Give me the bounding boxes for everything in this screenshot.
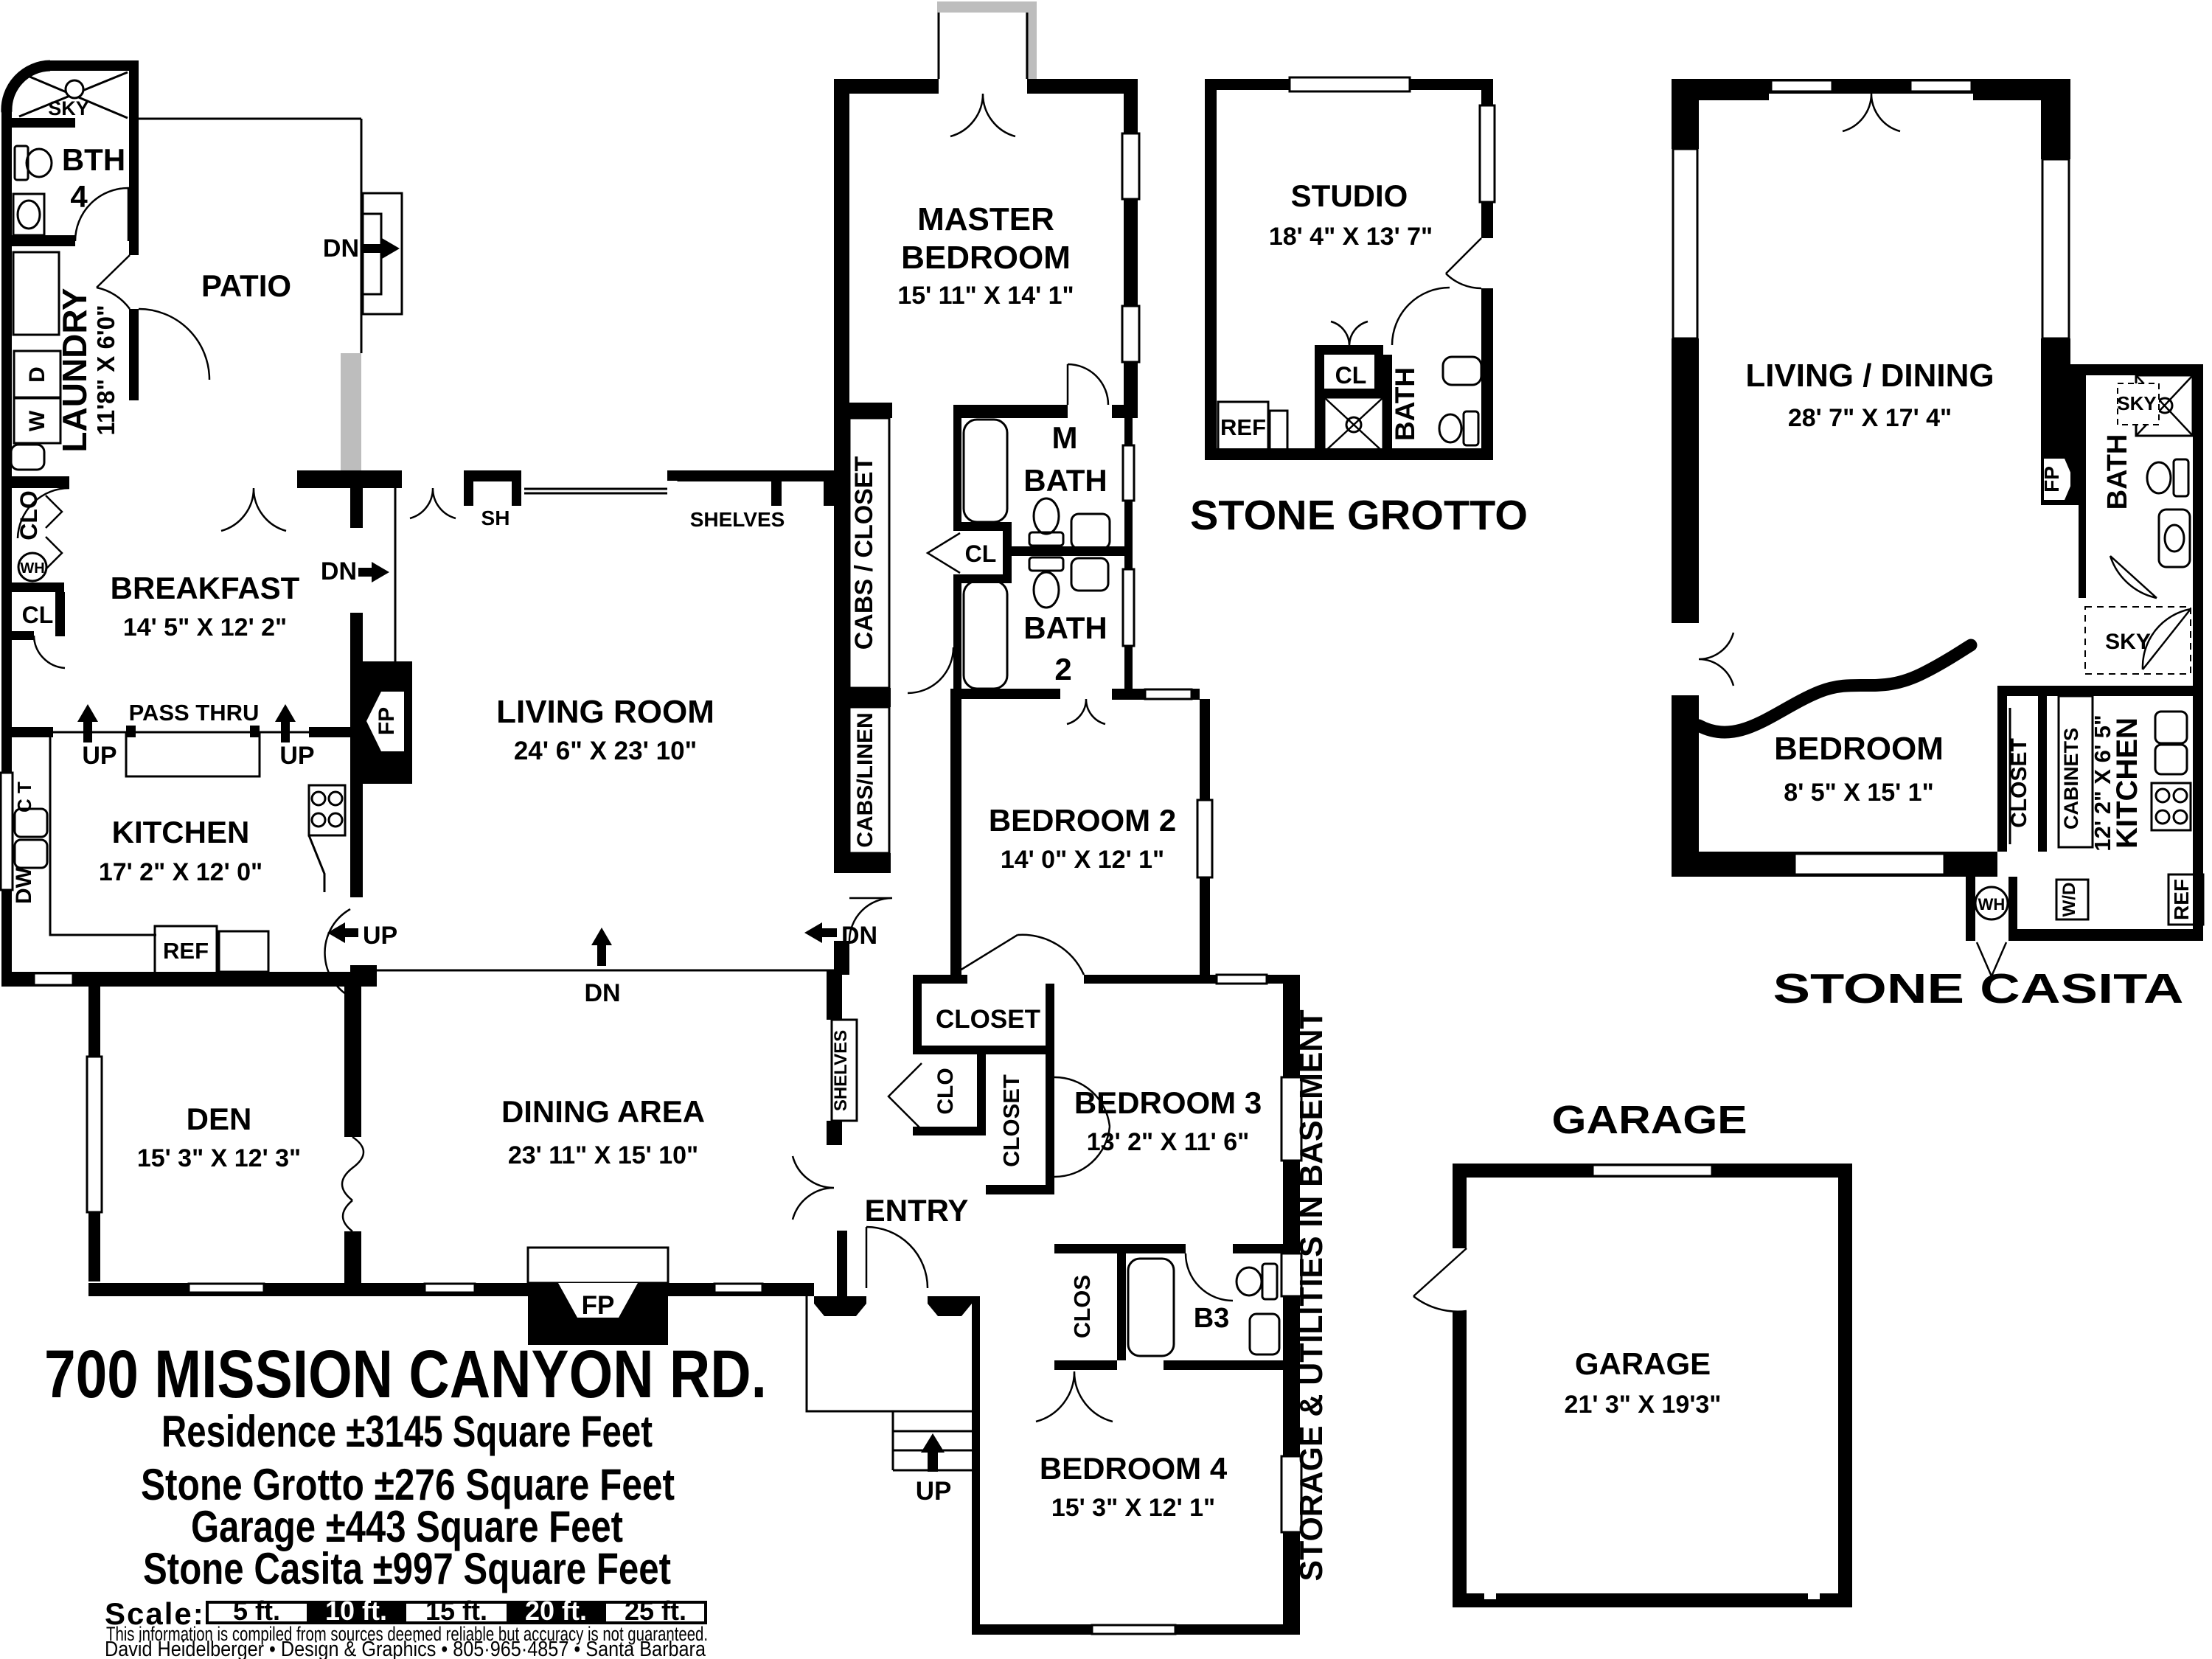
svg-text:W: W — [25, 410, 49, 431]
svg-text:SH: SH — [481, 507, 510, 529]
svg-text:17' 2" X 12' 0": 17' 2" X 12' 0" — [99, 858, 262, 886]
svg-text:CLO: CLO — [933, 1068, 958, 1114]
svg-text:CABS/LINEN: CABS/LINEN — [853, 712, 877, 847]
svg-text:UP: UP — [279, 742, 314, 770]
svg-text:21' 3" X 19'3": 21' 3" X 19'3" — [1565, 1391, 1722, 1419]
svg-text:STONE GROTTO: STONE GROTTO — [1190, 492, 1528, 539]
svg-text:REF: REF — [163, 938, 209, 964]
svg-text:FP: FP — [2040, 466, 2063, 493]
svg-text:BEDROOM: BEDROOM — [901, 240, 1071, 276]
svg-text:DN: DN — [584, 979, 620, 1007]
svg-text:WH: WH — [20, 560, 44, 577]
svg-text:SHELVES: SHELVES — [690, 508, 785, 531]
svg-text:13' 2" X 11' 6": 13' 2" X 11' 6" — [1087, 1128, 1249, 1156]
svg-text:10 ft.: 10 ft. — [325, 1596, 387, 1626]
svg-text:CL: CL — [22, 602, 54, 628]
svg-text:BTH: BTH — [62, 142, 125, 177]
svg-text:GARAGE: GARAGE — [1552, 1098, 1747, 1142]
svg-text:FP: FP — [582, 1291, 615, 1320]
svg-text:BREAKFAST: BREAKFAST — [111, 571, 300, 605]
svg-text:REF: REF — [1220, 414, 1266, 440]
svg-text:CABINETS: CABINETS — [2060, 728, 2082, 829]
svg-text:BATH: BATH — [2102, 434, 2133, 510]
svg-text:BEDROOM 4: BEDROOM 4 — [1040, 1451, 1228, 1486]
svg-text:KITCHEN: KITCHEN — [112, 815, 250, 849]
svg-text:15' 3" X 12' 1": 15' 3" X 12' 1" — [1051, 1494, 1215, 1522]
svg-text:PASS THRU: PASS THRU — [129, 700, 260, 726]
svg-text:W/D: W/D — [2059, 883, 2079, 917]
svg-text:STUDIO: STUDIO — [1291, 178, 1408, 213]
svg-text:M: M — [1052, 420, 1078, 455]
svg-text:CL: CL — [965, 540, 997, 567]
svg-text:14' 5" X 12' 2": 14' 5" X 12' 2" — [123, 613, 287, 641]
svg-text:700 MISSION CANYON RD.: 700 MISSION CANYON RD. — [44, 1337, 767, 1412]
svg-text:BATH: BATH — [1390, 367, 1420, 441]
svg-text:FP: FP — [375, 707, 399, 735]
svg-text:REF: REF — [2170, 879, 2193, 920]
svg-text:25 ft.: 25 ft. — [625, 1596, 686, 1626]
svg-text:8' 5" X 15' 1": 8' 5" X 15' 1" — [1784, 779, 1933, 807]
svg-text:CLOSET: CLOSET — [998, 1074, 1024, 1167]
svg-text:CABS / CLOSET: CABS / CLOSET — [850, 456, 878, 650]
svg-text:UP: UP — [82, 742, 116, 770]
svg-text:24' 6" X 23' 10": 24' 6" X 23' 10" — [514, 737, 697, 765]
svg-text:GARAGE: GARAGE — [1575, 1346, 1711, 1381]
svg-text:UP: UP — [916, 1477, 952, 1506]
svg-text:CLOS: CLOS — [1069, 1275, 1095, 1338]
svg-text:STORAGE & UTILITIES IN BASEMEN: STORAGE & UTILITIES IN BASEMENT — [1293, 1009, 1329, 1581]
svg-text:2: 2 — [1054, 652, 1071, 686]
svg-text:15' 11" X 14' 1": 15' 11" X 14' 1" — [897, 282, 1074, 310]
svg-text:DEN: DEN — [187, 1102, 252, 1136]
svg-text:SKY: SKY — [48, 97, 89, 119]
svg-text:WH: WH — [1978, 895, 2006, 914]
svg-text:UP: UP — [363, 922, 397, 950]
svg-text:SHELVES: SHELVES — [831, 1030, 851, 1111]
svg-text:BEDROOM 2: BEDROOM 2 — [989, 803, 1176, 838]
svg-text:B3: B3 — [1194, 1303, 1230, 1334]
svg-text:CLO: CLO — [15, 490, 42, 540]
svg-text:LIVING / DINING: LIVING / DINING — [1745, 358, 1994, 394]
svg-text:BEDROOM: BEDROOM — [1774, 731, 1944, 767]
svg-text:STONE CASITA: STONE CASITA — [1773, 965, 2184, 1012]
svg-text:20 ft.: 20 ft. — [525, 1596, 587, 1626]
svg-text:D: D — [25, 366, 49, 383]
svg-text:15 ft.: 15 ft. — [425, 1596, 487, 1626]
svg-text:DINING AREA: DINING AREA — [501, 1094, 705, 1129]
svg-text:KITCHEN: KITCHEN — [2111, 717, 2143, 849]
svg-text:DN: DN — [321, 557, 357, 585]
svg-text:DW: DW — [12, 866, 36, 904]
svg-text:BATH: BATH — [1023, 463, 1107, 498]
svg-text:11'8" X 6'0": 11'8" X 6'0" — [92, 305, 119, 435]
svg-text:5 ft.: 5 ft. — [233, 1596, 280, 1626]
svg-text:LIVING ROOM: LIVING ROOM — [496, 694, 714, 730]
svg-text:LAUNDRY: LAUNDRY — [55, 288, 94, 452]
svg-text:Stone Casita ±997 Square Feet: Stone Casita ±997 Square Feet — [143, 1544, 671, 1593]
svg-text:CLOSET: CLOSET — [936, 1005, 1040, 1034]
svg-text:SKY: SKY — [2105, 630, 2151, 654]
svg-text:18' 4" X 13' 7": 18' 4" X 13' 7" — [1269, 223, 1433, 251]
svg-text:PATIO: PATIO — [201, 268, 291, 303]
svg-text:BATH: BATH — [1023, 611, 1107, 645]
svg-text:ENTRY: ENTRY — [865, 1193, 969, 1228]
svg-text:14' 0" X 12' 1": 14' 0" X 12' 1" — [1001, 846, 1164, 874]
svg-text:David Heidelberger • Design &: David Heidelberger • Design & Graphics •… — [105, 1638, 706, 1659]
svg-text:Residence ±3145 Square Feet: Residence ±3145 Square Feet — [161, 1407, 653, 1456]
svg-text:MASTER: MASTER — [917, 201, 1054, 237]
svg-text:28' 7" X 17' 4": 28' 7" X 17' 4" — [1788, 404, 1952, 432]
svg-text:DN: DN — [323, 234, 359, 262]
svg-text:CL: CL — [1335, 362, 1367, 389]
svg-text:23' 11" X 15' 10": 23' 11" X 15' 10" — [508, 1141, 698, 1169]
svg-text:SKY: SKY — [2117, 392, 2156, 414]
svg-text:15' 3" X 12' 3": 15' 3" X 12' 3" — [137, 1144, 301, 1172]
